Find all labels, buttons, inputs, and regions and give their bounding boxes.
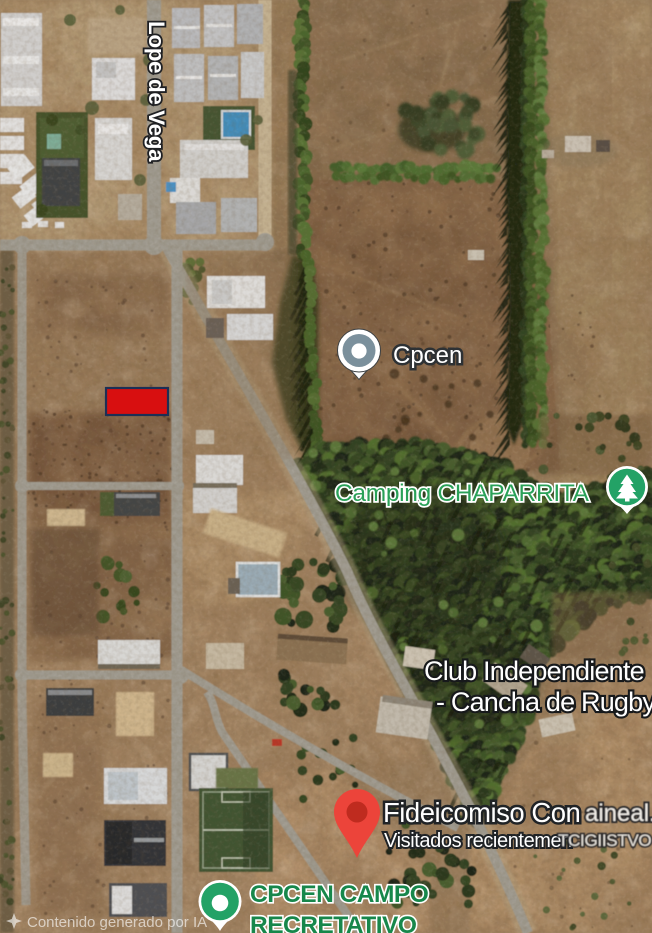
svg-text:Fideicomiso Con: Fideicomiso Con: [383, 797, 580, 828]
svg-text:Contenido generado por IA: Contenido generado por IA: [27, 914, 207, 931]
svg-text:Lope de Vega: Lope de Vega: [144, 21, 169, 162]
svg-text:Cpcen: Cpcen: [393, 342, 462, 369]
svg-text:TCIGIISTVO: TCIGIISTVO: [558, 831, 651, 850]
svg-text:CPCEN CAMPO: CPCEN CAMPO: [250, 881, 429, 908]
svg-text:- Cancha de Rugby: - Cancha de Rugby: [436, 687, 652, 717]
svg-text:RECRETATIVO: RECRETATIVO: [250, 912, 417, 933]
svg-text:Camping CHAPARRITA: Camping CHAPARRITA: [335, 480, 590, 507]
svg-text:aineal.: aineal.: [585, 800, 652, 827]
svg-text:Visitados recientemen: Visitados recientemen: [384, 830, 572, 852]
svg-text:Club Independiente: Club Independiente: [424, 656, 644, 686]
